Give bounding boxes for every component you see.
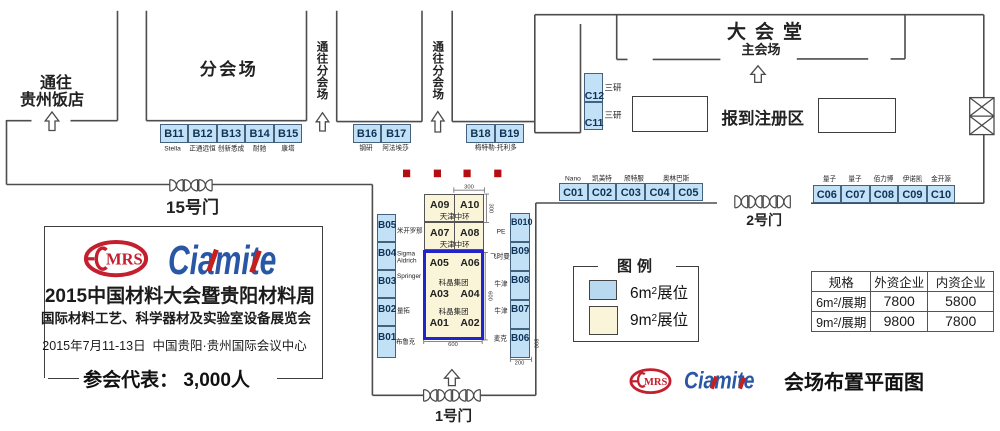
svg-text:600: 600	[448, 342, 458, 348]
svg-text:MRS: MRS	[106, 250, 143, 269]
svg-text:800: 800	[533, 339, 539, 349]
svg-text:麦克: 麦克	[494, 334, 508, 343]
svg-text:三研: 三研	[605, 83, 623, 93]
svg-text:飞时曼: 飞时曼	[490, 252, 510, 261]
svg-text:Springer: Springer	[397, 273, 422, 280]
svg-text:康塔: 康塔	[281, 144, 295, 153]
svg-text:量拓: 量拓	[397, 306, 410, 315]
svg-text:金开源: 金开源	[931, 174, 951, 183]
svg-text:凯美特: 凯美特	[592, 174, 612, 183]
svg-text:创新悉成: 创新悉成	[218, 144, 245, 153]
svg-text:颀特服: 颀特服	[624, 174, 644, 183]
svg-text:三研: 三研	[605, 110, 623, 120]
svg-text:梅特勒-托利多: 梅特勒-托利多	[475, 143, 517, 152]
svg-text:阿法埃莎: 阿法埃莎	[382, 143, 409, 152]
svg-text:Stella: Stella	[164, 146, 181, 153]
svg-text:佰力博: 佰力博	[874, 174, 894, 183]
svg-text:伊诺凯: 伊诺凯	[903, 174, 923, 183]
svg-text:耐驰: 耐驰	[253, 144, 267, 153]
svg-text:正通远恒: 正通远恒	[189, 144, 216, 153]
svg-text:MRS: MRS	[644, 377, 667, 388]
svg-text:通往分会场: 通往分会场	[431, 41, 444, 102]
svg-text:300: 300	[488, 203, 494, 213]
svg-text:600: 600	[487, 291, 493, 301]
svg-text:牛津: 牛津	[494, 279, 508, 288]
svg-text:奥林巴斯: 奥林巴斯	[663, 174, 690, 183]
svg-text:量子: 量子	[823, 175, 837, 183]
svg-text:PE: PE	[497, 229, 506, 236]
svg-text:200: 200	[515, 361, 525, 367]
svg-text:Aldrich: Aldrich	[397, 258, 417, 265]
svg-text:牛津: 牛津	[494, 306, 508, 315]
svg-text:钢研: 钢研	[359, 144, 373, 152]
svg-text:Nano: Nano	[565, 176, 581, 183]
svg-text:Sigma: Sigma	[397, 251, 416, 258]
svg-text:米开罗那: 米开罗那	[397, 226, 423, 235]
svg-text:300: 300	[464, 185, 474, 191]
svg-text:通往分会场: 通往分会场	[316, 41, 329, 102]
svg-text:布鲁克: 布鲁克	[396, 337, 416, 346]
svg-text:量子: 量子	[848, 175, 862, 183]
